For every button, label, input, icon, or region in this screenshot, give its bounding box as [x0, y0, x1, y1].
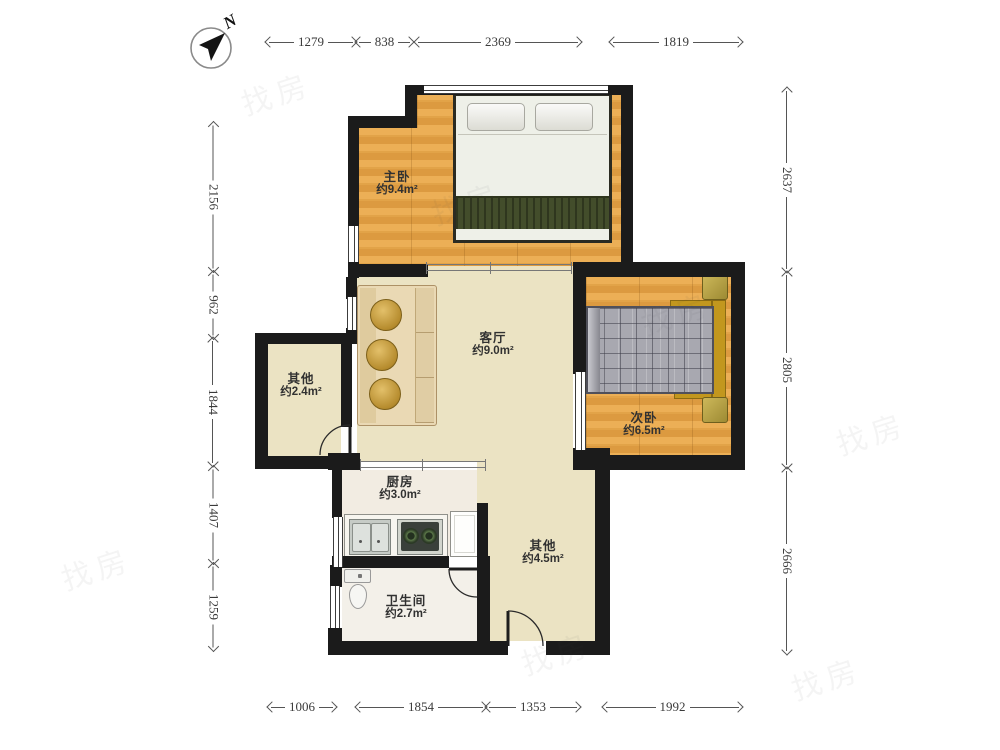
arrowhead-icon — [208, 270, 219, 281]
dimension-line: 1279 — [266, 34, 356, 50]
dimension-rule — [213, 214, 214, 269]
dimension-value: 1844 — [206, 385, 220, 419]
arrowhead-icon — [781, 270, 792, 281]
arrowhead-icon — [326, 701, 337, 712]
dimension-line: 838 — [356, 34, 413, 50]
dimension-line: 1844 — [205, 338, 221, 466]
dimension-line: 1992 — [603, 699, 742, 715]
dimension-value: 838 — [371, 35, 399, 49]
dimension-rule — [418, 42, 481, 43]
dimension-value: 2637 — [780, 163, 794, 197]
dimension-rule — [787, 471, 788, 544]
arrowhead-icon — [484, 701, 495, 712]
arrowhead-icon — [601, 701, 612, 712]
arrowhead-icon — [781, 86, 792, 97]
arrowhead-icon — [264, 36, 275, 47]
arrowhead-icon — [571, 36, 582, 47]
dimension-rule — [787, 197, 788, 269]
dimension-value: 2369 — [481, 35, 515, 49]
dimension-value: 1407 — [207, 498, 221, 532]
arrowhead-icon — [413, 36, 424, 47]
dimension-line: 1819 — [610, 34, 742, 50]
dimension-line: 1854 — [356, 699, 486, 715]
door-arc — [320, 425, 350, 455]
dimension-value: 1353 — [516, 700, 550, 714]
arrowhead-icon — [208, 641, 219, 652]
room-label-other-small: 其他 约2.4m² — [253, 372, 349, 400]
dimension-rule — [515, 42, 578, 43]
arrowhead-icon — [732, 701, 743, 712]
room-label-master-bedroom: 主卧 约9.4m² — [349, 170, 445, 198]
arrowhead-icon — [781, 644, 792, 655]
arrowhead-icon — [354, 701, 365, 712]
dimension-rule — [787, 387, 788, 465]
dimension-rule — [787, 578, 788, 651]
arrowhead-icon — [732, 36, 743, 47]
dimension-value: 1279 — [294, 35, 328, 49]
arrowhead-icon — [208, 562, 219, 573]
dimension-rule — [787, 91, 788, 163]
arrowhead-icon — [208, 465, 219, 476]
arrowhead-icon — [208, 121, 219, 132]
dimension-value: 962 — [207, 291, 221, 319]
door-arc — [449, 569, 477, 597]
floorplan-canvas: 主卧 约9.4m² 客厅 约9.0m² 次卧 约6.5m² 其他 约2.4m² … — [0, 0, 1000, 750]
arrowhead-icon — [608, 36, 619, 47]
dimension-rule — [787, 275, 788, 353]
room-label-kitchen: 厨房 约3.0m² — [352, 475, 448, 503]
dimension-line: 1353 — [486, 699, 580, 715]
dimension-value: 1819 — [659, 35, 693, 49]
dimension-value: 2666 — [780, 544, 794, 578]
room-label-other-large: 其他 约4.5m² — [495, 539, 591, 567]
door-arcs — [0, 0, 1000, 750]
entry-door-arc — [508, 611, 543, 646]
dimension-line: 1259 — [206, 564, 222, 651]
arrowhead-icon — [354, 36, 365, 47]
arrowhead-icon — [207, 336, 218, 347]
dimension-line: 1006 — [268, 699, 336, 715]
room-label-living-room: 客厅 约9.0m² — [445, 331, 541, 359]
dimension-value: 2805 — [780, 353, 794, 387]
dimension-value: 1854 — [404, 700, 438, 714]
dimension-line: 1407 — [206, 467, 222, 564]
room-label-bathroom: 卫生间 约2.7m² — [358, 594, 454, 622]
dimension-line: 2666 — [779, 468, 795, 654]
dimension-value: 1992 — [656, 700, 690, 714]
dimension-line: 962 — [206, 272, 222, 339]
dimension-line: 2805 — [779, 272, 795, 468]
dimension-value: 1259 — [207, 590, 221, 624]
dimension-value: 1006 — [285, 700, 319, 714]
room-label-second-bedroom: 次卧 约6.5m² — [596, 411, 692, 439]
arrowhead-icon — [781, 466, 792, 477]
dimension-rule — [213, 126, 214, 181]
arrowhead-icon — [570, 701, 581, 712]
dimension-rule — [606, 707, 656, 708]
arrowhead-icon — [266, 701, 277, 712]
dimension-value: 2156 — [207, 180, 221, 214]
dimension-line: 2156 — [206, 123, 222, 272]
dimension-line: 2369 — [415, 34, 581, 50]
dimension-line: 2637 — [779, 88, 795, 272]
